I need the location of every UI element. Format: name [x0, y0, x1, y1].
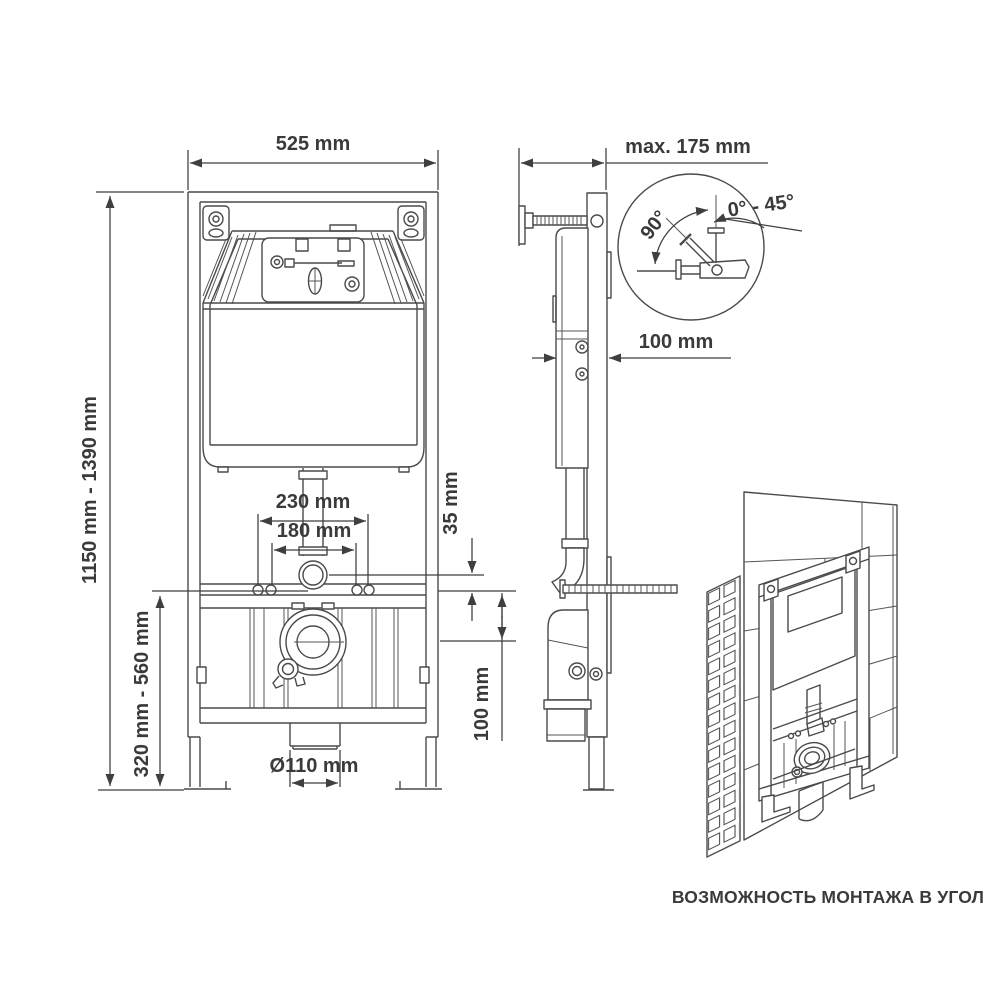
wall-bracket-left — [203, 206, 229, 240]
angle-full-label: 90° — [636, 207, 672, 244]
dim-body-depth: 100 mm — [639, 331, 714, 353]
dim-drain-height: 100 mm — [471, 667, 493, 742]
isometric-corner-view — [707, 492, 897, 857]
technical-drawing-page: 525 mm 1150 mm - 1390 mm 320 mm - 560 mm… — [0, 0, 1000, 1000]
dim-outlet-range: 320 mm - 560 mm — [131, 611, 153, 778]
installation-frame-drawing: 525 mm 1150 mm - 1390 mm 320 mm - 560 mm… — [0, 0, 1000, 1000]
dim-holes-inner: 180 mm — [277, 520, 352, 542]
dim-drain-diameter: Ø110 mm — [270, 755, 359, 777]
dim-frame-width: 525 mm — [276, 133, 351, 155]
wall-bracket-right — [398, 206, 424, 240]
flush-pipe-side — [552, 468, 588, 593]
cistern-side — [553, 228, 588, 468]
angle-range-label: 0° - 45° — [726, 190, 796, 221]
frame-rail-side — [587, 193, 607, 737]
dim-height-range: 1150 mm - 1390 mm — [79, 396, 101, 584]
cistern-front — [203, 225, 424, 472]
angle-detail: 90° 0° - 45° — [618, 174, 802, 320]
dim-flange-offset: 35 mm — [440, 471, 462, 534]
dim-holes-outer: 230 mm — [276, 491, 351, 513]
support-rod-side — [560, 580, 677, 598]
dim-depth-max: max. 175 mm — [625, 136, 751, 158]
corner-mount-caption: ВОЗМОЖНОСТЬ МОНТАЖА В УГОЛ — [672, 887, 984, 907]
access-panel — [262, 238, 364, 302]
perforated-block-wall — [707, 576, 740, 857]
